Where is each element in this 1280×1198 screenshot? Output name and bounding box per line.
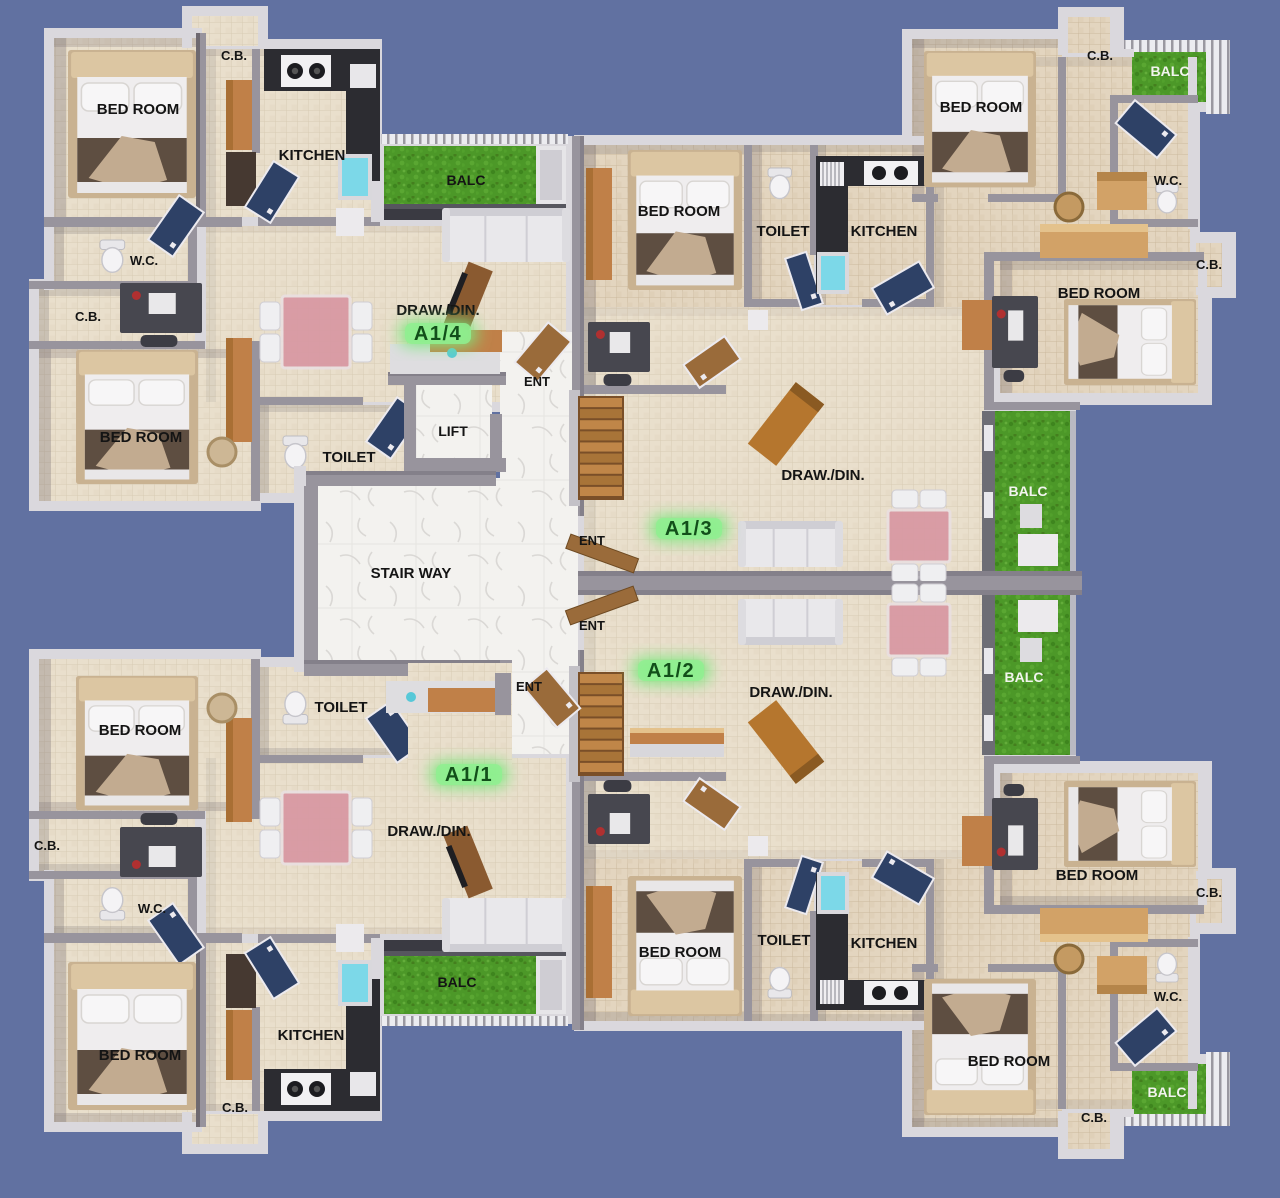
svg-text:BALC: BALC bbox=[1009, 483, 1048, 499]
svg-text:BED ROOM: BED ROOM bbox=[1056, 867, 1139, 884]
svg-text:W.C.: W.C. bbox=[130, 253, 158, 268]
svg-text:ENT: ENT bbox=[516, 679, 542, 694]
svg-text:A1/3: A1/3 bbox=[665, 518, 713, 540]
svg-text:A1/4: A1/4 bbox=[414, 323, 462, 345]
svg-text:ENT: ENT bbox=[524, 374, 550, 389]
svg-text:BED ROOM: BED ROOM bbox=[100, 429, 183, 446]
svg-text:C.B.: C.B. bbox=[1196, 257, 1222, 272]
svg-text:KITCHEN: KITCHEN bbox=[851, 223, 918, 240]
svg-text:BED ROOM: BED ROOM bbox=[968, 1053, 1051, 1070]
svg-text:C.B.: C.B. bbox=[34, 838, 60, 853]
svg-text:C.B.: C.B. bbox=[221, 48, 247, 63]
svg-text:TOILET: TOILET bbox=[756, 223, 809, 240]
svg-text:DRAW./DIN.: DRAW./DIN. bbox=[749, 684, 832, 701]
svg-text:BALC: BALC bbox=[1151, 63, 1190, 79]
svg-text:DRAW./DIN.: DRAW./DIN. bbox=[396, 302, 479, 319]
svg-text:TOILET: TOILET bbox=[757, 932, 810, 949]
svg-text:TOILET: TOILET bbox=[314, 699, 367, 716]
svg-text:C.B.: C.B. bbox=[75, 309, 101, 324]
svg-text:C.B.: C.B. bbox=[1087, 48, 1113, 63]
svg-text:BED ROOM: BED ROOM bbox=[940, 99, 1023, 116]
svg-text:BALC: BALC bbox=[447, 172, 486, 188]
svg-text:BED ROOM: BED ROOM bbox=[1058, 285, 1141, 302]
svg-text:A1/1: A1/1 bbox=[445, 764, 493, 786]
svg-text:KITCHEN: KITCHEN bbox=[851, 935, 918, 952]
svg-text:A1/2: A1/2 bbox=[647, 660, 695, 682]
svg-text:ENT: ENT bbox=[579, 618, 605, 633]
svg-text:BALC: BALC bbox=[438, 974, 477, 990]
svg-text:DRAW./DIN.: DRAW./DIN. bbox=[781, 467, 864, 484]
svg-text:W.C.: W.C. bbox=[1154, 989, 1182, 1004]
svg-text:W.C.: W.C. bbox=[138, 901, 166, 916]
svg-text:ENT: ENT bbox=[579, 533, 605, 548]
svg-text:BALC: BALC bbox=[1005, 669, 1044, 685]
svg-text:BED ROOM: BED ROOM bbox=[639, 944, 722, 961]
svg-text:DRAW./DIN.: DRAW./DIN. bbox=[387, 823, 470, 840]
svg-text:BALC: BALC bbox=[1148, 1084, 1187, 1100]
svg-text:C.B.: C.B. bbox=[1081, 1110, 1107, 1125]
svg-text:BED ROOM: BED ROOM bbox=[97, 101, 180, 118]
svg-text:STAIR WAY: STAIR WAY bbox=[371, 565, 452, 582]
svg-text:KITCHEN: KITCHEN bbox=[279, 147, 346, 164]
svg-text:BED ROOM: BED ROOM bbox=[99, 722, 182, 739]
svg-text:KITCHEN: KITCHEN bbox=[278, 1027, 345, 1044]
svg-text:W.C.: W.C. bbox=[1154, 173, 1182, 188]
svg-text:BED ROOM: BED ROOM bbox=[638, 203, 721, 220]
svg-text:C.B.: C.B. bbox=[1196, 885, 1222, 900]
svg-text:C.B.: C.B. bbox=[222, 1100, 248, 1115]
svg-text:TOILET: TOILET bbox=[322, 449, 375, 466]
svg-text:LIFT: LIFT bbox=[438, 423, 468, 439]
svg-text:BED ROOM: BED ROOM bbox=[99, 1047, 182, 1064]
